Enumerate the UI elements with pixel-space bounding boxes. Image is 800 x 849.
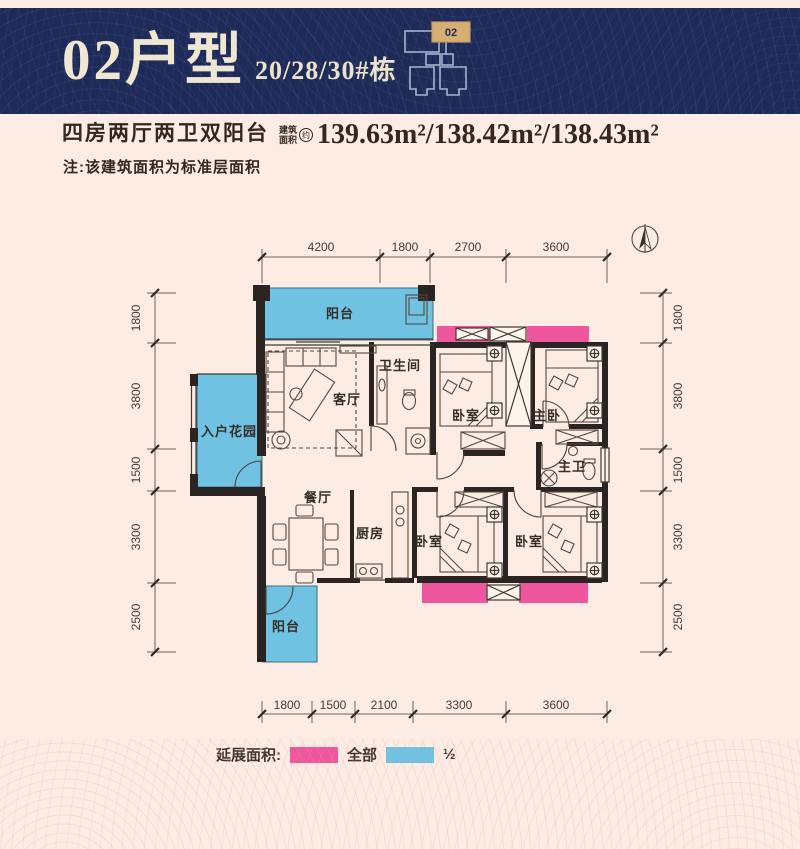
pink-strip-bottom-left <box>422 582 488 603</box>
room-label-kitchen: 厨房 <box>356 526 384 541</box>
flyer-page: 02户型 20/28/30#栋 02 四房两厅两卫双阳台 建筑 面积 约 <box>0 0 800 849</box>
dim-label: 3800 <box>671 382 685 409</box>
room-label-balcony-bottom: 阳台 <box>272 619 300 634</box>
legend-label: 延展面积: <box>216 744 281 765</box>
dim-label: 3300 <box>671 523 685 550</box>
legend-blue-swatch <box>386 747 434 763</box>
dim-label: 3300 <box>446 698 473 712</box>
floor-plan: 阳台 客厅 卫生间 卧室 主卧 主卫 入户花园 餐厅 厨房 卧室 卧室 阳台 <box>0 0 800 849</box>
dim-label: 1800 <box>129 304 143 331</box>
dim-label: 2100 <box>371 698 398 712</box>
dining-table <box>273 505 338 583</box>
room-label-balcony-top: 阳台 <box>326 306 354 321</box>
pink-strip-top-right <box>527 326 589 342</box>
dimensions-bottom: 1800 1500 2100 3300 3600 <box>258 698 611 723</box>
dim-label: 3600 <box>543 240 570 254</box>
legend-half-label: ½ <box>443 746 456 763</box>
dim-label: 3800 <box>129 382 143 409</box>
dimensions-right: 1800 3800 1500 3300 2500 <box>640 289 685 656</box>
dim-label: 1800 <box>671 304 685 331</box>
dim-label: 2500 <box>129 603 143 630</box>
bathroom-fixtures <box>377 366 430 454</box>
legend-pink-swatch <box>290 747 338 763</box>
dimensions-top: 4200 1800 2700 3600 <box>258 240 611 283</box>
dim-label: 3300 <box>129 523 143 550</box>
room-label-dining: 餐厅 <box>303 490 332 505</box>
dimensions-left: 1800 3800 1500 3300 2500 <box>129 289 176 656</box>
room-label-entry-garden: 入户花园 <box>201 424 257 439</box>
dim-label: 1500 <box>129 456 143 483</box>
dim-label: 2700 <box>455 240 482 254</box>
room-label-bedroom-top: 卧室 <box>452 408 480 423</box>
dim-label: 4200 <box>308 240 335 254</box>
dim-label: 3600 <box>543 698 570 712</box>
legend-full-label: 全部 <box>347 744 377 765</box>
room-label-living: 客厅 <box>333 392 361 407</box>
dim-label: 1500 <box>320 698 347 712</box>
compass-icon <box>632 224 658 253</box>
room-label-bedroom-mid: 卧室 <box>415 534 443 549</box>
room-label-master-bath: 主卫 <box>558 459 586 474</box>
room-label-bedroom-right: 卧室 <box>515 534 543 549</box>
bed-bottom-mid <box>440 516 494 572</box>
room-label-bath: 卫生间 <box>379 358 421 373</box>
pink-strip-bottom-right <box>519 582 588 603</box>
dim-label: 2500 <box>671 603 685 630</box>
dim-label: 1500 <box>671 456 685 483</box>
dim-label: 1800 <box>274 698 301 712</box>
legend: 延展面积: 全部 ½ <box>216 744 456 765</box>
room-label-master-bedroom: 主卧 <box>533 408 561 423</box>
dim-label: 1800 <box>392 240 419 254</box>
